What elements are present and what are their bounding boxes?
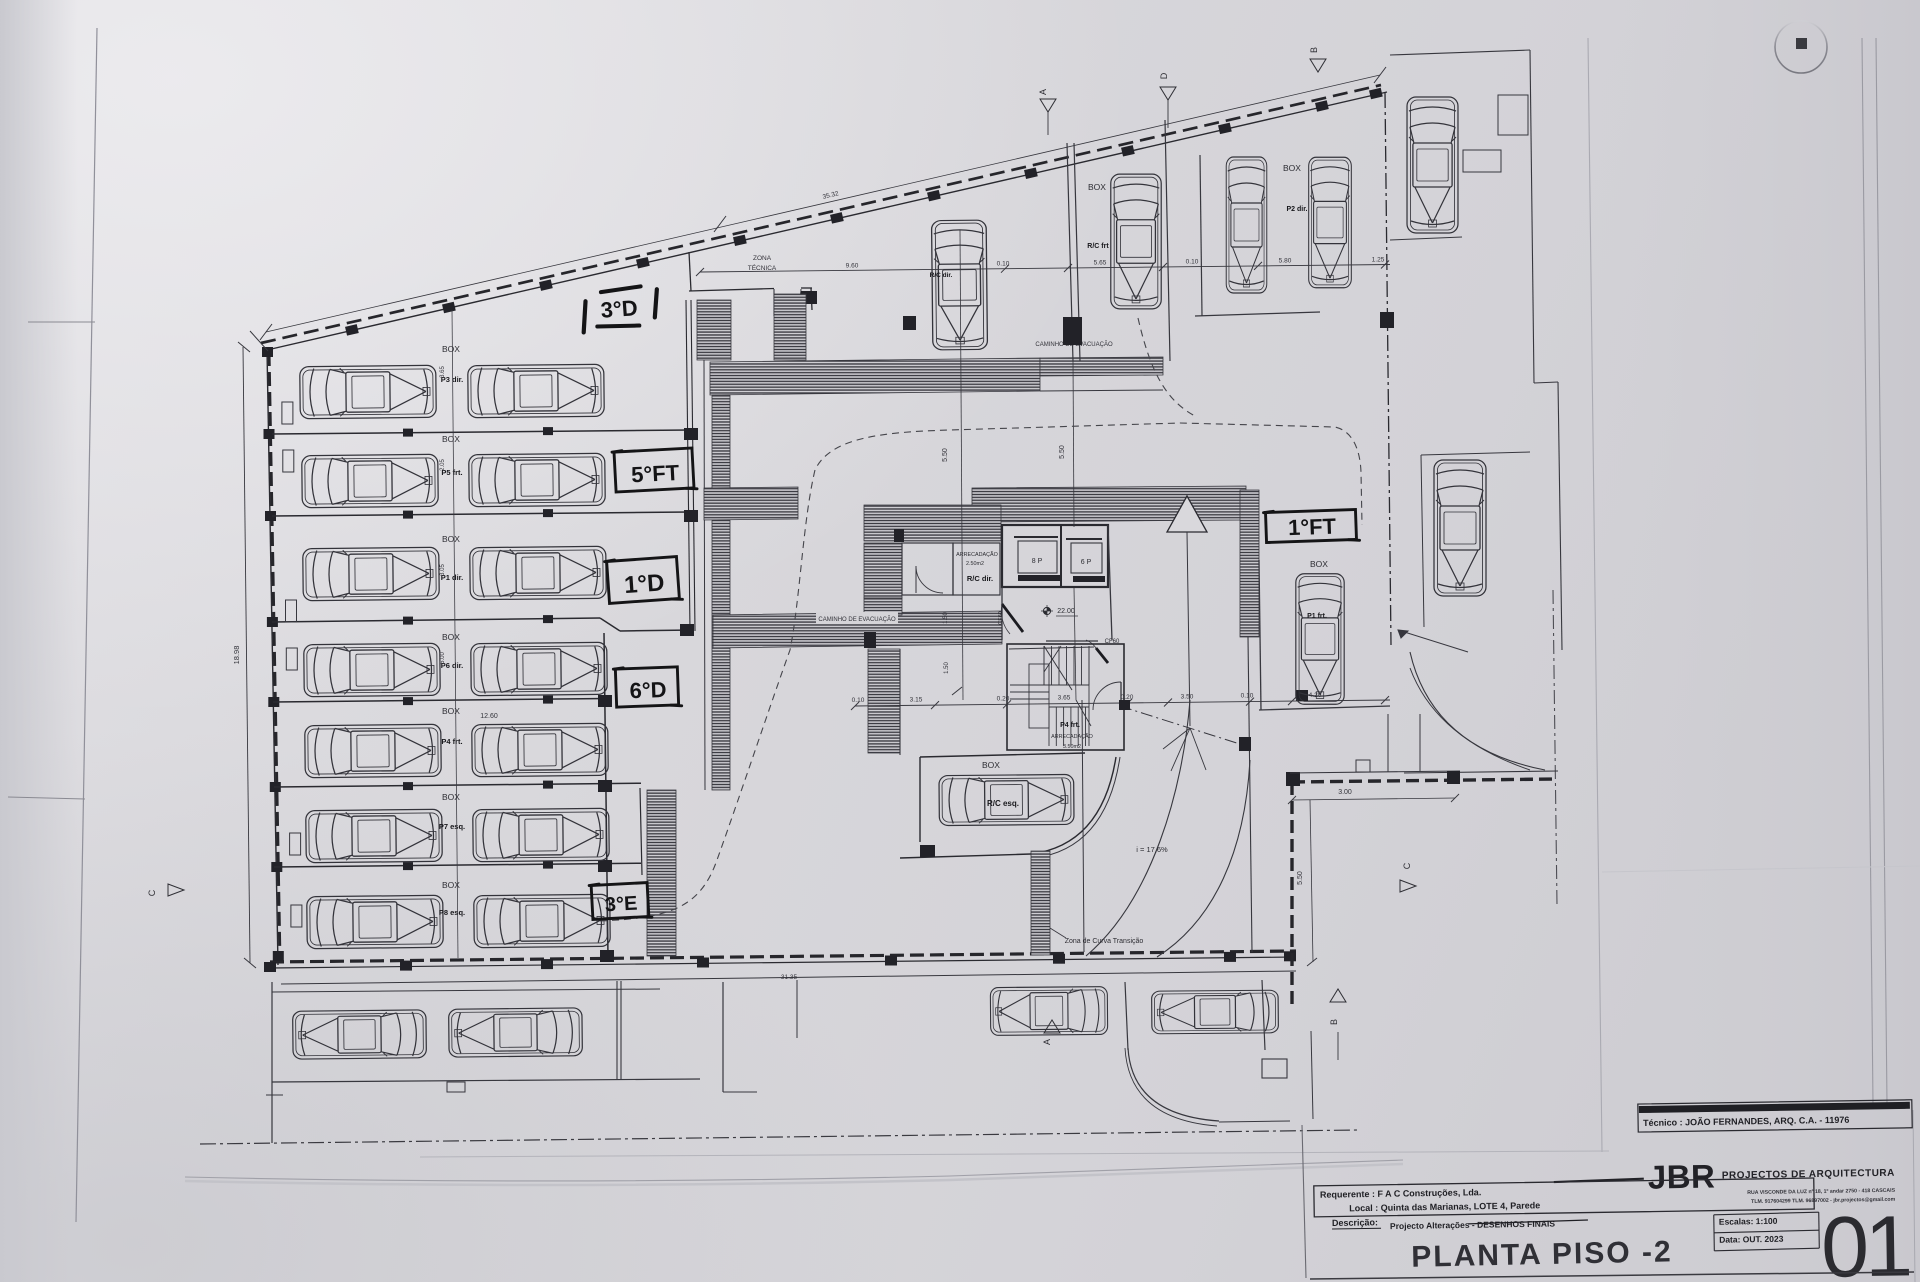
svg-text:R/C dir.: R/C dir.	[930, 272, 953, 279]
svg-text:Escalas: 1:100: Escalas: 1:100	[1719, 1216, 1778, 1227]
svg-text:PLANTA PISO -2: PLANTA PISO -2	[1411, 1235, 1673, 1273]
svg-text:CAMINHO DE EVACUAÇÃO: CAMINHO DE EVACUAÇÃO	[818, 616, 896, 623]
svg-text:6°D: 6°D	[629, 677, 667, 703]
svg-text:R/C esq.: R/C esq.	[987, 799, 1019, 808]
svg-text:1.50: 1.50	[943, 612, 949, 624]
svg-text:P2 dir.: P2 dir.	[1286, 206, 1307, 213]
svg-text:3.65: 3.65	[1058, 695, 1071, 702]
svg-text:5.00: 5.00	[440, 652, 446, 664]
svg-text:P7 esq.: P7 esq.	[439, 822, 465, 831]
svg-text:01: 01	[1820, 1198, 1909, 1282]
svg-text:5.80: 5.80	[1279, 258, 1292, 265]
svg-text:1°D: 1°D	[623, 569, 665, 599]
svg-text:BOX: BOX	[982, 760, 1000, 770]
svg-text:BOX: BOX	[1088, 182, 1106, 192]
svg-text:Zona de Curva Transição: Zona de Curva Transição	[1065, 938, 1144, 945]
svg-text:P4 frt.: P4 frt.	[1060, 722, 1080, 729]
svg-text:3.15: 3.15	[910, 696, 923, 703]
svg-text:P8 esq.: P8 esq.	[439, 908, 465, 917]
svg-text:A: A	[1042, 1039, 1052, 1045]
svg-text:3°D: 3°D	[600, 295, 639, 323]
svg-text:Descrição:: Descrição:	[1332, 1217, 1378, 1228]
svg-text:BOX: BOX	[442, 632, 460, 642]
svg-text:TÉCNICA: TÉCNICA	[748, 263, 777, 272]
svg-text:2.50m2: 2.50m2	[966, 561, 984, 567]
svg-text:0.10: 0.10	[1186, 259, 1199, 266]
svg-text:BOX: BOX	[442, 534, 460, 544]
svg-text:BOX: BOX	[442, 792, 460, 802]
svg-text:3.65: 3.65	[440, 366, 446, 378]
svg-text:5.50: 5.50	[1297, 871, 1304, 885]
svg-text:CF60: CF60	[998, 611, 1004, 624]
svg-text:22.00: 22.00	[1057, 608, 1075, 615]
svg-text:0.10: 0.10	[1241, 693, 1254, 700]
svg-text:R/C dir.: R/C dir.	[967, 574, 993, 583]
svg-text:JBR: JBR	[1647, 1158, 1715, 1196]
svg-text:3.50m2: 3.50m2	[1063, 744, 1081, 750]
svg-text:5.50: 5.50	[1059, 445, 1066, 459]
svg-text:Data: OUT. 2023: Data: OUT. 2023	[1719, 1234, 1784, 1245]
svg-text:8 P: 8 P	[1032, 558, 1043, 565]
svg-text:D: D	[1159, 72, 1169, 79]
svg-text:6 P: 6 P	[1081, 559, 1092, 566]
svg-text:1.50: 1.50	[944, 662, 950, 674]
svg-text:18.98: 18.98	[232, 646, 241, 665]
svg-text:BOX: BOX	[442, 434, 460, 444]
svg-text:12.60: 12.60	[480, 713, 498, 720]
svg-text:ZONA: ZONA	[753, 255, 772, 262]
svg-text:ARRECADAÇÃO: ARRECADAÇÃO	[1051, 733, 1093, 740]
svg-text:R/C frt: R/C frt	[1087, 243, 1109, 250]
svg-text:3.05: 3.05	[440, 564, 446, 576]
svg-text:3°E: 3°E	[604, 893, 638, 917]
svg-text:P1 frt.: P1 frt.	[1307, 613, 1327, 620]
svg-text:3.50: 3.50	[1181, 693, 1194, 700]
svg-text:31.35: 31.35	[781, 974, 798, 981]
svg-text:C: C	[1402, 862, 1412, 869]
svg-text:BOX: BOX	[1310, 559, 1328, 569]
svg-text:1°FT: 1°FT	[1288, 514, 1337, 541]
svg-text:BOX: BOX	[442, 706, 460, 716]
svg-text:B: B	[1329, 1019, 1339, 1025]
svg-text:BOX: BOX	[1283, 163, 1301, 173]
svg-text:A: A	[1038, 89, 1048, 95]
svg-text:0.20: 0.20	[1121, 694, 1134, 701]
svg-text:0.20: 0.20	[997, 695, 1010, 702]
svg-text:B: B	[1309, 47, 1319, 53]
svg-text:2.05: 2.05	[440, 459, 446, 471]
svg-text:1.25: 1.25	[1372, 257, 1385, 264]
svg-text:P4 frt.: P4 frt.	[441, 737, 462, 746]
svg-text:5.65: 5.65	[1094, 260, 1107, 267]
svg-text:i = 17,6%: i = 17,6%	[1136, 845, 1168, 854]
svg-text:BOX: BOX	[442, 344, 460, 354]
svg-text:C: C	[147, 889, 157, 896]
svg-text:3.00: 3.00	[1338, 789, 1352, 796]
svg-text:9.60: 9.60	[846, 262, 859, 269]
svg-text:5°FT: 5°FT	[631, 460, 681, 488]
svg-text:5.50: 5.50	[942, 448, 949, 462]
